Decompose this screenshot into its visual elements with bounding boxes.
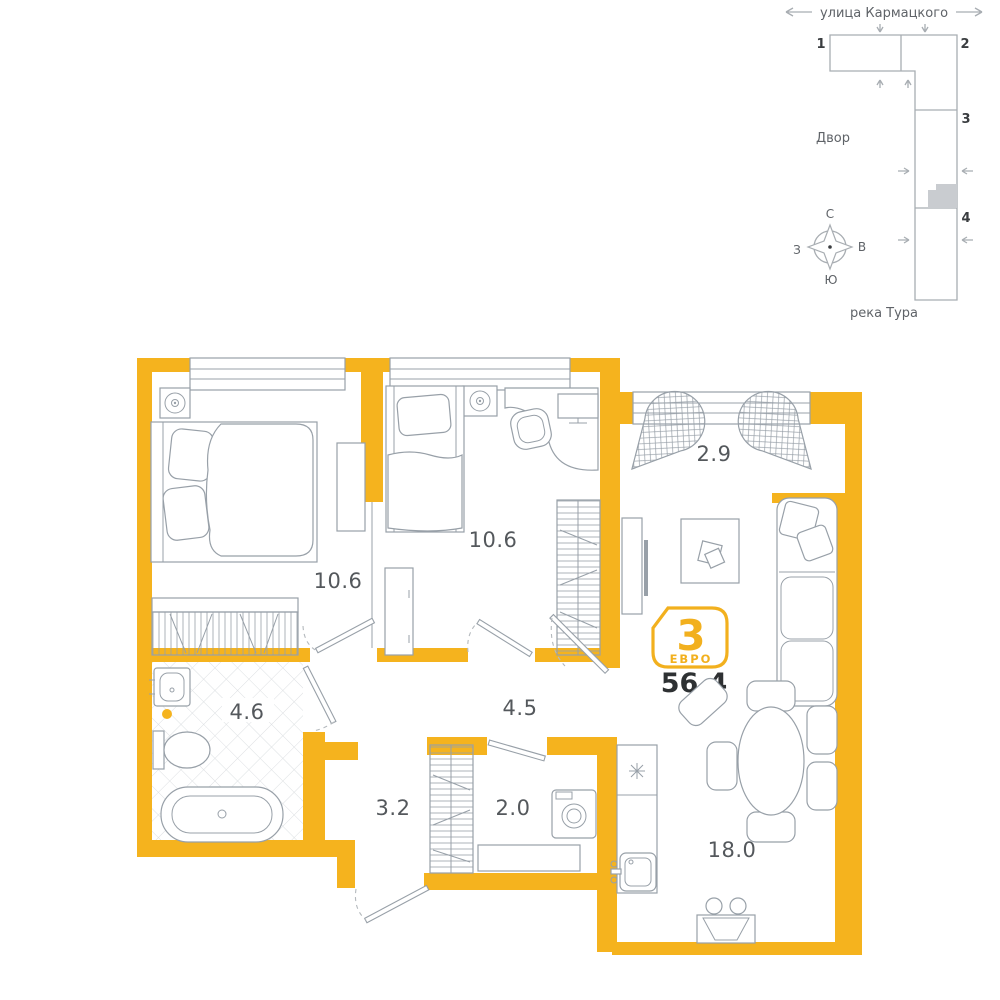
tv-unit bbox=[622, 518, 648, 614]
door-leaf-bathroom bbox=[303, 666, 336, 724]
entrance-arrow-right-icon bbox=[898, 237, 909, 243]
dining-chair bbox=[807, 762, 837, 810]
section-number-4: 4 bbox=[961, 211, 970, 226]
room-label-hallway: 4.5 bbox=[503, 696, 538, 720]
dresser bbox=[337, 443, 365, 531]
room-label-kitchen-living: 18.0 bbox=[708, 838, 757, 862]
door-leaf-bedroom-1 bbox=[316, 618, 375, 652]
compass-icon: С В Ю З bbox=[793, 207, 866, 287]
courtyard-label: Двор bbox=[816, 131, 850, 146]
window-bedroom-2 bbox=[390, 358, 570, 390]
dining-chair bbox=[807, 706, 837, 754]
double-bed bbox=[151, 422, 317, 562]
stove bbox=[697, 898, 755, 943]
entrance-arrow-down-icon bbox=[922, 24, 928, 32]
room-label-bedroom-1: 10.6 bbox=[314, 569, 363, 593]
entrance-arrow-up-icon bbox=[905, 80, 911, 88]
room-label-entry-hall: 3.2 bbox=[376, 796, 411, 820]
wardrobe-rack bbox=[152, 598, 298, 655]
bathroom-sink bbox=[149, 668, 190, 706]
floor-plan-svg: улица Кармацкого 1 2 3 4 Двор река Тура … bbox=[0, 0, 1000, 1000]
entrance-arrow-left-icon bbox=[962, 168, 973, 174]
door-leaf-bedroom-2 bbox=[477, 619, 532, 656]
dining-chair bbox=[707, 742, 737, 790]
bedroom-1: 10.6 bbox=[151, 388, 374, 655]
door-leaf-wardrobe-room bbox=[488, 740, 545, 761]
wardrobe-rack bbox=[430, 745, 473, 873]
dining-table bbox=[738, 707, 804, 815]
site-minimap: улица Кармацкого 1 2 3 4 Двор река Тура … bbox=[786, 6, 982, 321]
single-bed bbox=[386, 386, 464, 532]
entrance-arrow-down-icon bbox=[877, 24, 883, 32]
window-bedroom-1 bbox=[190, 358, 345, 390]
utility-dot bbox=[162, 709, 172, 719]
bedroom-2: 10.6 bbox=[385, 386, 600, 657]
washing-machine bbox=[552, 790, 596, 838]
room-label-bedroom-2: 10.6 bbox=[469, 528, 518, 552]
highlighted-unit bbox=[928, 184, 957, 208]
windows bbox=[190, 358, 810, 424]
building-outline bbox=[830, 35, 957, 300]
street-arrow-left-icon bbox=[786, 8, 812, 16]
bathtub bbox=[161, 787, 283, 842]
entrance-arrow-up-icon bbox=[877, 80, 883, 88]
door-swing-bedroom-1 bbox=[303, 626, 317, 651]
street-arrow-right-icon bbox=[956, 8, 982, 16]
dresser bbox=[385, 568, 413, 655]
door-swing-bedroom-2 bbox=[468, 622, 478, 652]
room-label-balcony: 2.9 bbox=[697, 442, 732, 466]
tv-icon bbox=[644, 540, 648, 596]
coffee-table bbox=[681, 519, 739, 583]
compass-west: З bbox=[793, 243, 801, 257]
kitchen-counter bbox=[611, 745, 657, 893]
section-number-3: 3 bbox=[961, 112, 970, 127]
entrance-arrow-right-icon bbox=[898, 168, 909, 174]
badge-type-label: ЕВРО bbox=[670, 652, 713, 666]
section-number-1: 1 bbox=[816, 37, 825, 52]
door-swing-bathroom bbox=[312, 722, 334, 731]
compass-south: Ю bbox=[825, 273, 838, 287]
room-label-bathroom: 4.6 bbox=[230, 700, 265, 724]
ceiling-light-icon bbox=[160, 388, 190, 418]
utility-dot bbox=[599, 839, 609, 849]
room-label-wardrobe-room: 2.0 bbox=[496, 796, 531, 820]
storage-bench bbox=[478, 845, 580, 871]
river-label: река Тура bbox=[850, 306, 918, 321]
section-number-2: 2 bbox=[960, 37, 969, 52]
door-leaf-entry bbox=[365, 885, 429, 922]
wardrobe-room: 2.0 bbox=[430, 740, 596, 873]
street-label: улица Кармацкого bbox=[820, 6, 948, 21]
hob-icon bbox=[629, 763, 645, 779]
floor-plan-page: улица Кармацкого 1 2 3 4 Двор река Тура … bbox=[0, 0, 1000, 1000]
unit-type-badge: 3 ЕВРО bbox=[653, 608, 727, 667]
ceiling-light-icon bbox=[463, 386, 497, 416]
entrance-arrow-left-icon bbox=[962, 237, 973, 243]
sofa bbox=[777, 498, 837, 706]
compass-east: В bbox=[858, 240, 866, 254]
toilet bbox=[153, 731, 210, 769]
door-swing-entry bbox=[355, 889, 366, 920]
compass-north: С bbox=[826, 207, 834, 221]
